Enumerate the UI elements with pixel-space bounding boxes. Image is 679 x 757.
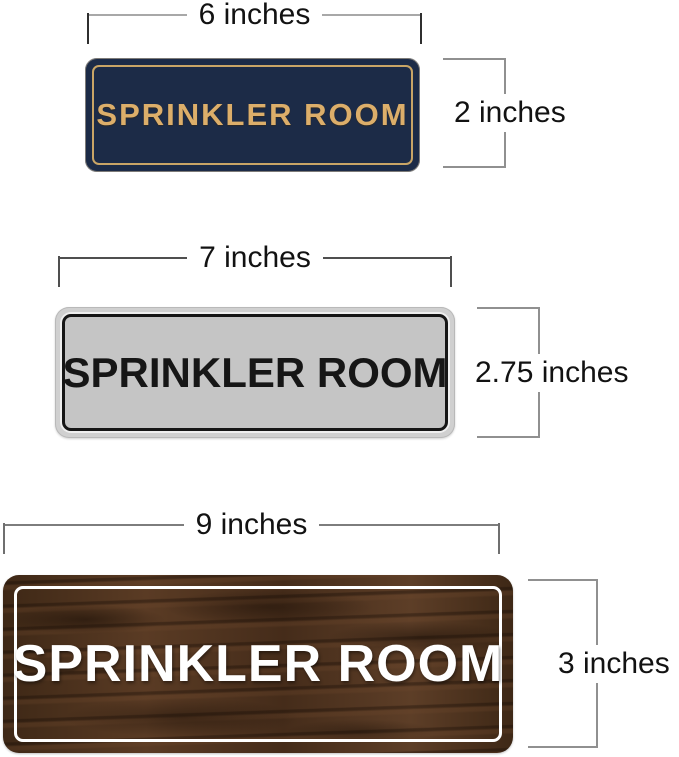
dimension-line: [323, 257, 452, 259]
dimension-tick: [498, 523, 500, 554]
dimension-tick: [58, 256, 60, 287]
dimension-line: [58, 257, 187, 259]
dimension-tick: [477, 436, 540, 438]
sign-border-frame: SPRINKLER ROOM: [14, 586, 502, 742]
height-dimension-label: 2.75 inches: [469, 354, 634, 392]
dimension-tick: [87, 13, 89, 44]
width-dimension-sign3: 9 inches: [3, 510, 500, 540]
height-dimension-sign3: 3 inches: [528, 579, 598, 748]
sign-text: SPRINKLER ROOM: [13, 634, 504, 694]
dimension-tick: [450, 256, 452, 287]
dimension-tick: [443, 58, 506, 60]
height-dimension-label: 3 inches: [552, 645, 676, 683]
dimension-tick: [443, 166, 506, 168]
dimension-line: [319, 524, 500, 526]
dimension-tick: [420, 13, 422, 44]
width-dimension-sign2: 7 inches: [58, 243, 452, 273]
height-dimension-sign1: 2 inches: [443, 58, 506, 168]
sign-border-frame: SPRINKLER ROOM: [92, 65, 413, 165]
dimension-tick: [528, 746, 598, 748]
product-dimension-diagram: 6 inches SPRINKLER ROOM 2 inches 7 inche…: [0, 0, 679, 757]
height-dimension-sign2: 2.75 inches: [477, 307, 540, 438]
dimension-line: [87, 14, 187, 16]
dimension-line: [322, 14, 422, 16]
width-dimension-label: 6 inches: [187, 0, 323, 30]
sign-plate-navy: SPRINKLER ROOM: [85, 58, 420, 172]
sign-text: SPRINKLER ROOM: [96, 97, 408, 133]
width-dimension-label: 9 inches: [184, 510, 320, 540]
sign-border-frame: SPRINKLER ROOM: [62, 314, 448, 431]
dimension-line: [3, 524, 184, 526]
dimension-tick: [3, 523, 5, 554]
sign-text: SPRINKLER ROOM: [63, 349, 448, 397]
dimension-tick: [477, 307, 540, 309]
dimension-tick: [528, 579, 598, 581]
sign-plate-silver: SPRINKLER ROOM: [55, 307, 455, 438]
height-dimension-label: 2 inches: [448, 94, 572, 132]
width-dimension-sign1: 6 inches: [87, 0, 422, 30]
sign-plate-wood: SPRINKLER ROOM: [3, 575, 513, 753]
width-dimension-label: 7 inches: [187, 243, 323, 273]
